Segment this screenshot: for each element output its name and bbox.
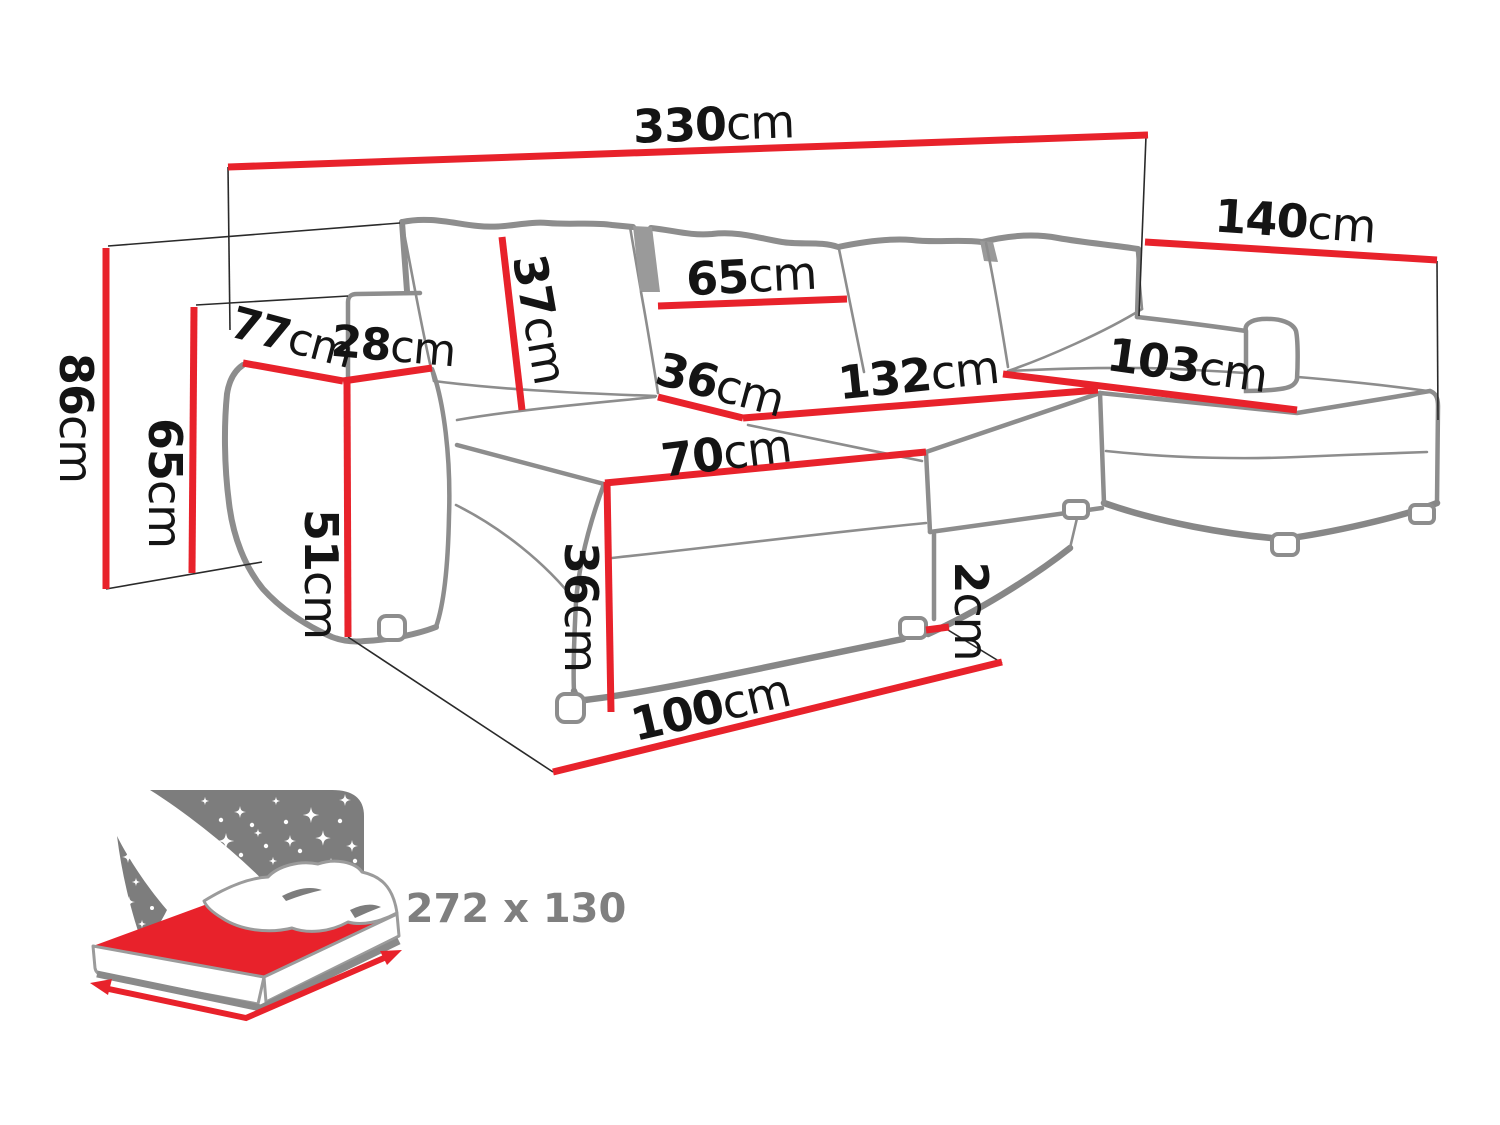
dimension-labels: 330cm 140cm 86cm 65cm 77cm 28cm 37cm 65c… xyxy=(49,94,1377,752)
sofa-leg xyxy=(1410,505,1434,523)
dim-back-cushion-width-label: 65cm xyxy=(685,246,818,307)
sofa-leg xyxy=(1272,534,1298,555)
sleeping-size-label: 272 x 130 xyxy=(406,886,627,932)
sofa-leg xyxy=(900,618,926,638)
dim-armrest-height-label: 51cm xyxy=(294,509,348,639)
sofa-leg xyxy=(557,694,584,722)
dim-total-depth-label: 140cm xyxy=(1213,188,1378,253)
dim-seat-front-height-label: 36cm xyxy=(554,542,608,672)
duvet-and-pillows xyxy=(204,861,397,931)
center-section xyxy=(900,393,1102,638)
dim-backrest-height-label: 65cm xyxy=(138,418,192,548)
dim-total-height-label: 86cm xyxy=(49,353,103,483)
diagram-canvas: 330cm 140cm 86cm 65cm 77cm 28cm 37cm 65c… xyxy=(0,0,1500,1125)
sleeping-function-icon xyxy=(90,790,402,1018)
sofa-drawing xyxy=(225,220,1438,722)
dimension-diagram: 330cm 140cm 86cm 65cm 77cm 28cm 37cm 65c… xyxy=(0,0,1500,1125)
sofa-leg xyxy=(1064,501,1088,518)
dim-total-width-label: 330cm xyxy=(632,94,795,154)
sofa-leg xyxy=(379,616,405,640)
dim-armrest-width-label: 28cm xyxy=(329,316,457,378)
dim-leg-height-label: 2cm xyxy=(944,561,998,660)
dim-back-cushion-height-label: 37cm xyxy=(502,250,578,388)
dim-left-chaise-front-label: 70cm xyxy=(658,418,794,487)
